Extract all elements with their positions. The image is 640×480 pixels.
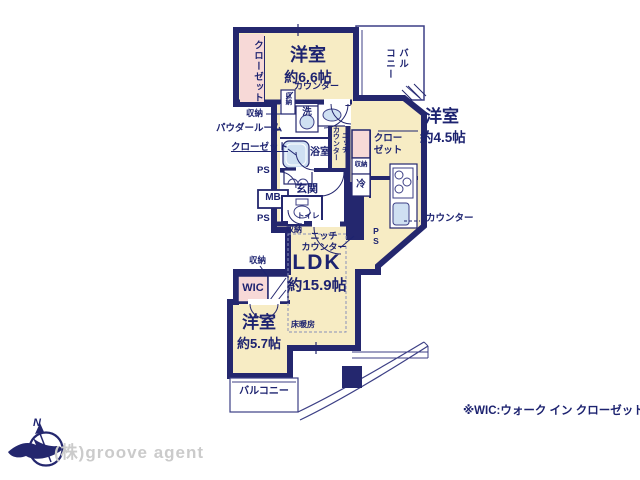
closet-66-label: クローゼット xyxy=(242,40,262,98)
storage-wic-label: 収納 xyxy=(249,256,266,265)
closet-45-label-2: ゼット xyxy=(371,146,405,156)
bedroom-57-size: 約5.7帖 xyxy=(226,337,292,351)
counter-right-label: カウンター xyxy=(426,214,474,224)
bedroom-45-name: 洋室 xyxy=(425,108,459,126)
ps-kitchen-label: PS xyxy=(371,226,380,246)
balcony-top-label-1: バル xyxy=(397,48,407,78)
closet-powder-label: クローゼット xyxy=(230,143,288,153)
powder-room-label: パウダールーム xyxy=(216,124,272,134)
storage-powder-label: 収納 xyxy=(246,109,263,118)
niche-vertical-label: ニッチ xyxy=(341,132,348,166)
floor-heating-label: 床暖房 xyxy=(291,321,315,329)
storage-45-label: 収納 xyxy=(352,162,370,169)
bedroom-66-name: 洋室 xyxy=(264,46,352,65)
genkan-label: 玄関 xyxy=(296,184,318,196)
niche-counter-label-1: ニッチ xyxy=(304,232,344,241)
storage-ldk-label: 収納 xyxy=(286,226,302,234)
wic-label: WIC xyxy=(238,283,268,295)
washer-label: 洗 xyxy=(297,108,317,118)
wic-note: ※WIC:ウォーク イン クローゼット xyxy=(463,405,640,417)
balcony-top-label-2: コニー xyxy=(384,48,394,92)
floorplan-page: クローゼット 洋室 約6.6帖 カウンター バル コニー 収納 収納 洗 パウダ… xyxy=(0,0,640,480)
bedroom-45-size: 約4.5帖 xyxy=(420,131,466,145)
mb-label: MB xyxy=(258,193,288,204)
bath-label: 浴室 xyxy=(310,148,330,159)
ldk-size: 約15.9帖 xyxy=(278,278,356,294)
counter-vertical-label: カウンター xyxy=(332,126,339,174)
ldk-name: LDK xyxy=(282,252,352,274)
toilet-label: トイレ xyxy=(297,212,320,220)
watermark-text: (株)groove agent xyxy=(54,444,204,462)
fridge-label: 冷 xyxy=(352,180,370,190)
bedroom-57-name: 洋室 xyxy=(230,314,288,332)
ps-bottom-label: PS xyxy=(257,214,270,224)
compass-north-label: N xyxy=(33,418,41,430)
closet-45-label-1: クロー xyxy=(371,134,405,144)
storage-notch-label: 収納 xyxy=(283,92,290,113)
balcony-bottom-label: バルコニー xyxy=(234,387,294,398)
counter-66-label: カウンター xyxy=(294,82,339,91)
ps-top-label: PS xyxy=(257,166,270,176)
